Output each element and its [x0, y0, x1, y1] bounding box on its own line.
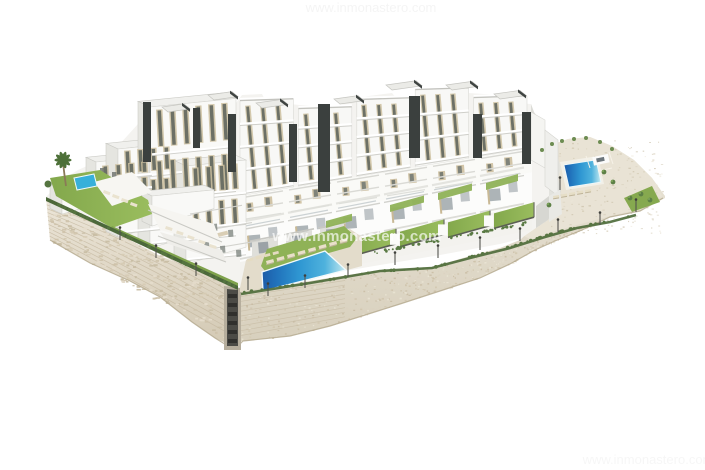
- svg-text:www.inmonastero.com: www.inmonastero.com: [305, 0, 437, 15]
- svg-text:www.inmonastero.com: www.inmonastero.com: [271, 228, 441, 245]
- svg-text:www.inmonastero.com: www.inmonastero.com: [582, 452, 705, 467]
- svg-text:www.inmonastero.com: www.inmonastero.com: [0, 268, 101, 283]
